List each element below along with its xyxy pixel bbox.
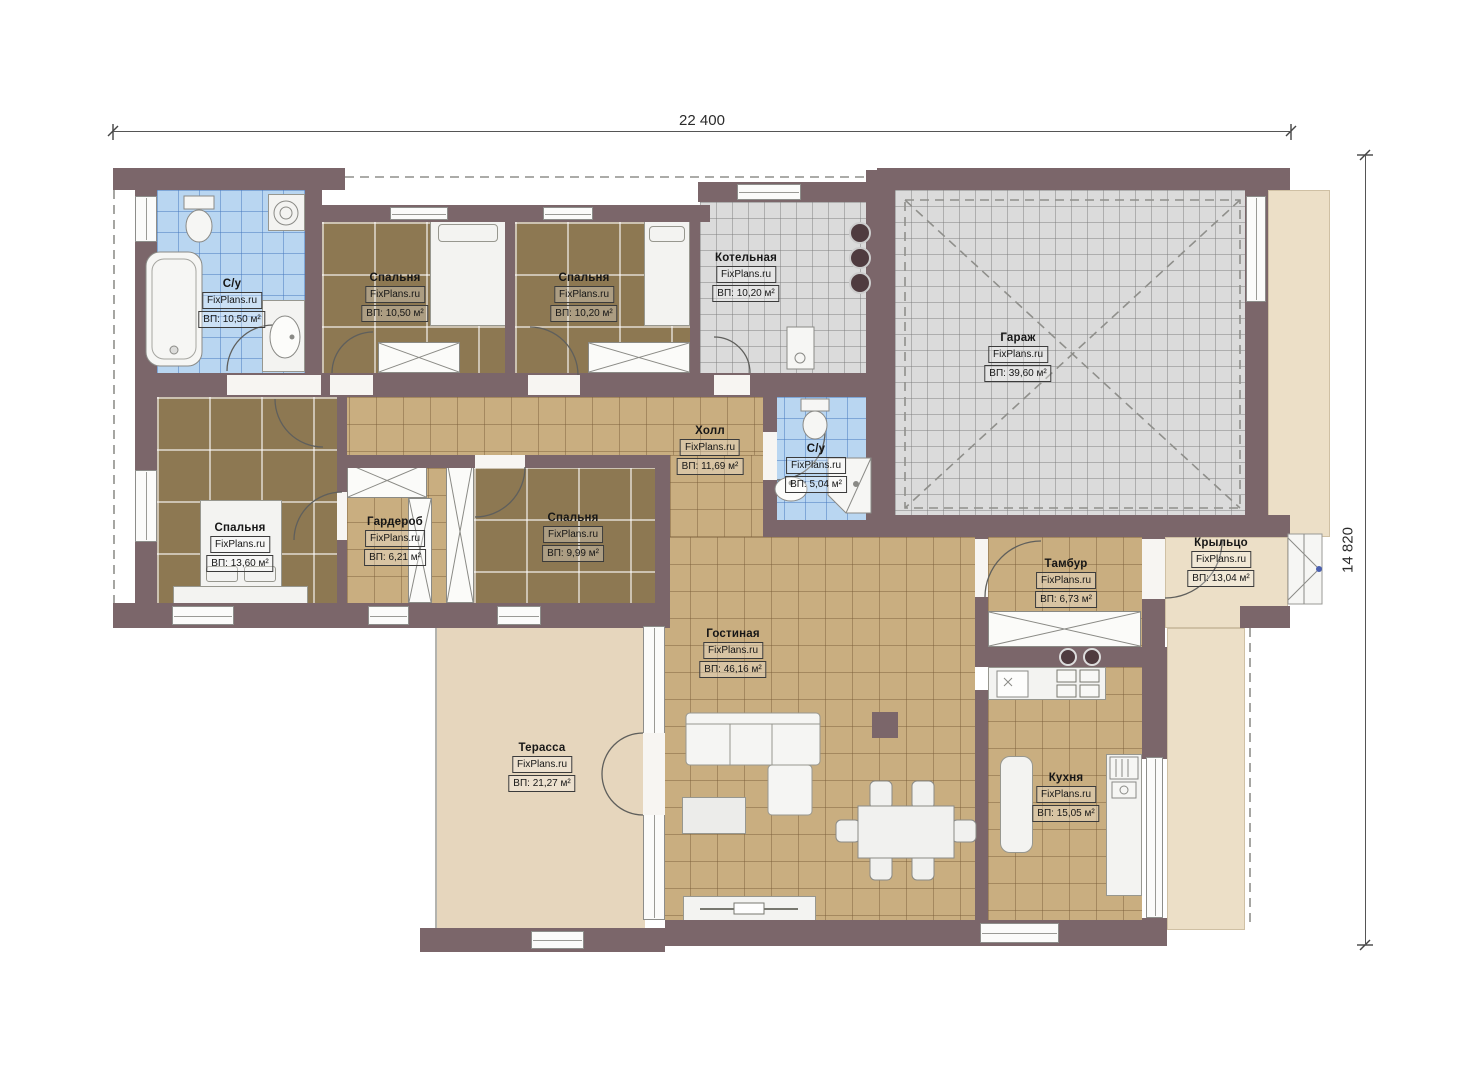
room-watermark: FixPlans.ru [512,756,572,773]
window-bedroom-2 [543,207,593,220]
room-label-boiler-room: Котельная FixPlans.ru ВП: 10,20 м² [712,252,779,302]
room-label-bathroom-1: С/у FixPlans.ru ВП: 10,50 м² [198,278,265,328]
floor-driveway [1268,190,1330,537]
wardrobe-cabinet-bed2 [588,342,690,373]
room-area: ВП: 11,69 м² [677,458,744,475]
window-wardrobe [368,606,409,625]
room-name: Терасса [518,742,565,754]
room-name: С/у [223,278,242,290]
room-label-terrace: Терасса FixPlans.ru ВП: 21,27 м² [508,742,575,792]
room-watermark: FixPlans.ru [543,526,603,543]
room-name: Спальня [214,522,265,534]
floor-living-room [663,537,975,920]
wall-bed1-bed2 [505,222,515,373]
door-gap-tambour [975,539,988,597]
room-area: ВП: 6,21 м² [364,549,426,566]
room-watermark: FixPlans.ru [1036,572,1096,589]
room-name: Спальня [547,512,598,524]
kitchen-counter-right [1106,754,1142,896]
wall-terrace-junction [643,603,670,626]
window-bedroom-4 [497,606,541,625]
wall-top-left [113,168,345,190]
wall-bed2-right [690,205,700,397]
window-terrace-south [531,931,584,949]
bathroom-1-counter [262,300,305,372]
room-label-bedroom-3: Спальня FixPlans.ru ВП: 13,60 м² [206,522,273,572]
dimension-width: 22 400 [679,112,725,129]
door-gap-bedroom-4 [475,455,525,468]
door-gap-bedroom-1 [330,375,373,395]
door-gap-bath1-bed3 [227,375,321,395]
kitchen-island [1000,756,1033,853]
room-area: ВП: 5,04 м² [785,476,847,493]
room-label-tambour: Тамбур FixPlans.ru ВП: 6,73 м² [1035,558,1097,608]
room-area: ВП: 13,60 м² [206,555,273,572]
room-area: ВП: 10,20 м² [550,305,617,322]
wall-bottom-living [665,920,1165,946]
dimension-line-top [113,131,1291,132]
tv-stand [683,896,816,922]
room-name: Гараж [1000,332,1035,344]
room-area: ВП: 21,27 м² [508,775,575,792]
room-label-porch: Крыльцо FixPlans.ru ВП: 13,04 м² [1187,537,1254,587]
window-kitchen-east [1146,757,1163,918]
dimension-height: 14 820 [1340,527,1357,573]
bed-2-pillow [649,226,685,242]
room-name: Тамбур [1045,558,1088,570]
wall-garage-top [877,168,1290,190]
door-gap-bathroom-2 [763,432,777,480]
wardrobe-cabinet-bed1 [378,342,460,373]
room-watermark: FixPlans.ru [1191,551,1251,568]
room-name: Кухня [1049,772,1084,784]
wall-garage-bottom [877,515,1290,537]
wall-bed4-right [655,455,670,605]
floor-plan: 22 400 14 820 С/у FixPlans.ru ВП: 10,50 … [0,0,1474,1080]
tambour-cabinet [988,611,1141,647]
wall-bath2-bottom [763,520,877,537]
room-label-bedroom-2: Спальня FixPlans.ru ВП: 10,20 м² [550,272,617,322]
room-area: ВП: 10,50 м² [361,305,428,322]
room-name: Спальня [369,272,420,284]
room-watermark: FixPlans.ru [365,286,425,303]
wall-bath1-right [305,190,322,397]
room-label-bedroom-1: Спальня FixPlans.ru ВП: 10,50 м² [361,272,428,322]
room-name: Гостиная [706,628,760,640]
room-name: Спальня [558,272,609,284]
room-watermark: FixPlans.ru [703,642,763,659]
room-name: Крыльцо [1194,537,1248,549]
room-watermark: FixPlans.ru [1036,786,1096,803]
dimension-line-right [1365,155,1366,945]
room-area: ВП: 10,50 м² [198,311,265,328]
room-name: С/у [807,443,826,455]
room-watermark: FixPlans.ru [988,346,1048,363]
room-label-hall: Холл FixPlans.ru ВП: 11,69 м² [677,425,744,475]
door-gap-bedroom-2 [528,375,580,395]
room-watermark: FixPlans.ru [786,457,846,474]
wall-garage-left [866,170,895,537]
washing-machine [268,194,305,231]
window-bedroom-3-south [172,606,234,625]
wall-left [135,190,157,628]
window-bedroom-3 [135,470,157,542]
room-area: ВП: 13,04 м² [1187,570,1254,587]
window-living-south [980,923,1059,943]
wall-kitchen-right-a [1142,647,1167,759]
wall-bedrooms-bottom [322,373,710,397]
coffee-table [682,797,746,834]
floor-garage [895,190,1245,515]
door-gap-boiler [714,375,750,395]
window-boiler [737,184,801,200]
room-label-bedroom-4: Спальня FixPlans.ru ВП: 9,99 м² [542,512,604,562]
room-area: ВП: 9,99 м² [542,545,604,562]
wall-kitchen-top [975,647,1145,667]
porch-stairs [1288,534,1322,604]
room-label-kitchen: Кухня FixPlans.ru ВП: 15,05 м² [1032,772,1099,822]
room-label-wardrobe: Гардероб FixPlans.ru ВП: 6,21 м² [364,516,426,566]
floor-porch-side [1167,628,1245,930]
window-bathroom-1 [135,196,157,242]
bed-1-pillow [438,224,498,242]
room-watermark: FixPlans.ru [202,292,262,309]
room-watermark: FixPlans.ru [554,286,614,303]
wall-porch-stub [1240,606,1290,628]
room-area: ВП: 39,60 м² [984,365,1051,382]
door-gap-entrance [1142,539,1165,599]
room-watermark: FixPlans.ru [210,536,270,553]
door-gap-wardrobe [337,492,347,540]
room-name: Гардероб [367,516,423,528]
room-area: ВП: 6,73 м² [1035,591,1097,608]
room-label-bathroom-2: С/у FixPlans.ru ВП: 5,04 м² [785,443,847,493]
window-bedroom-1 [390,207,448,220]
room-watermark: FixPlans.ru [680,439,740,456]
room-area: ВП: 15,05 м² [1032,805,1099,822]
room-label-living-room: Гостиная FixPlans.ru ВП: 46,16 м² [699,628,766,678]
room-name: Холл [695,425,725,437]
kitchen-counter-top [988,667,1106,700]
wall-kitchen-living [975,690,988,922]
wardrobe-divider-cabinet [446,460,474,603]
wardrobe-cabinet-top [347,463,427,498]
garage-door [1246,196,1266,302]
room-watermark: FixPlans.ru [365,530,425,547]
room-watermark: FixPlans.ru [716,266,776,283]
wall-bedrooms-top [322,205,710,222]
room-name: Котельная [715,252,777,264]
room-area: ВП: 10,20 м² [712,285,779,302]
room-area: ВП: 46,16 м² [699,661,766,678]
door-gap-terrace [643,733,665,815]
room-label-garage: Гараж FixPlans.ru ВП: 39,60 м² [984,332,1051,382]
